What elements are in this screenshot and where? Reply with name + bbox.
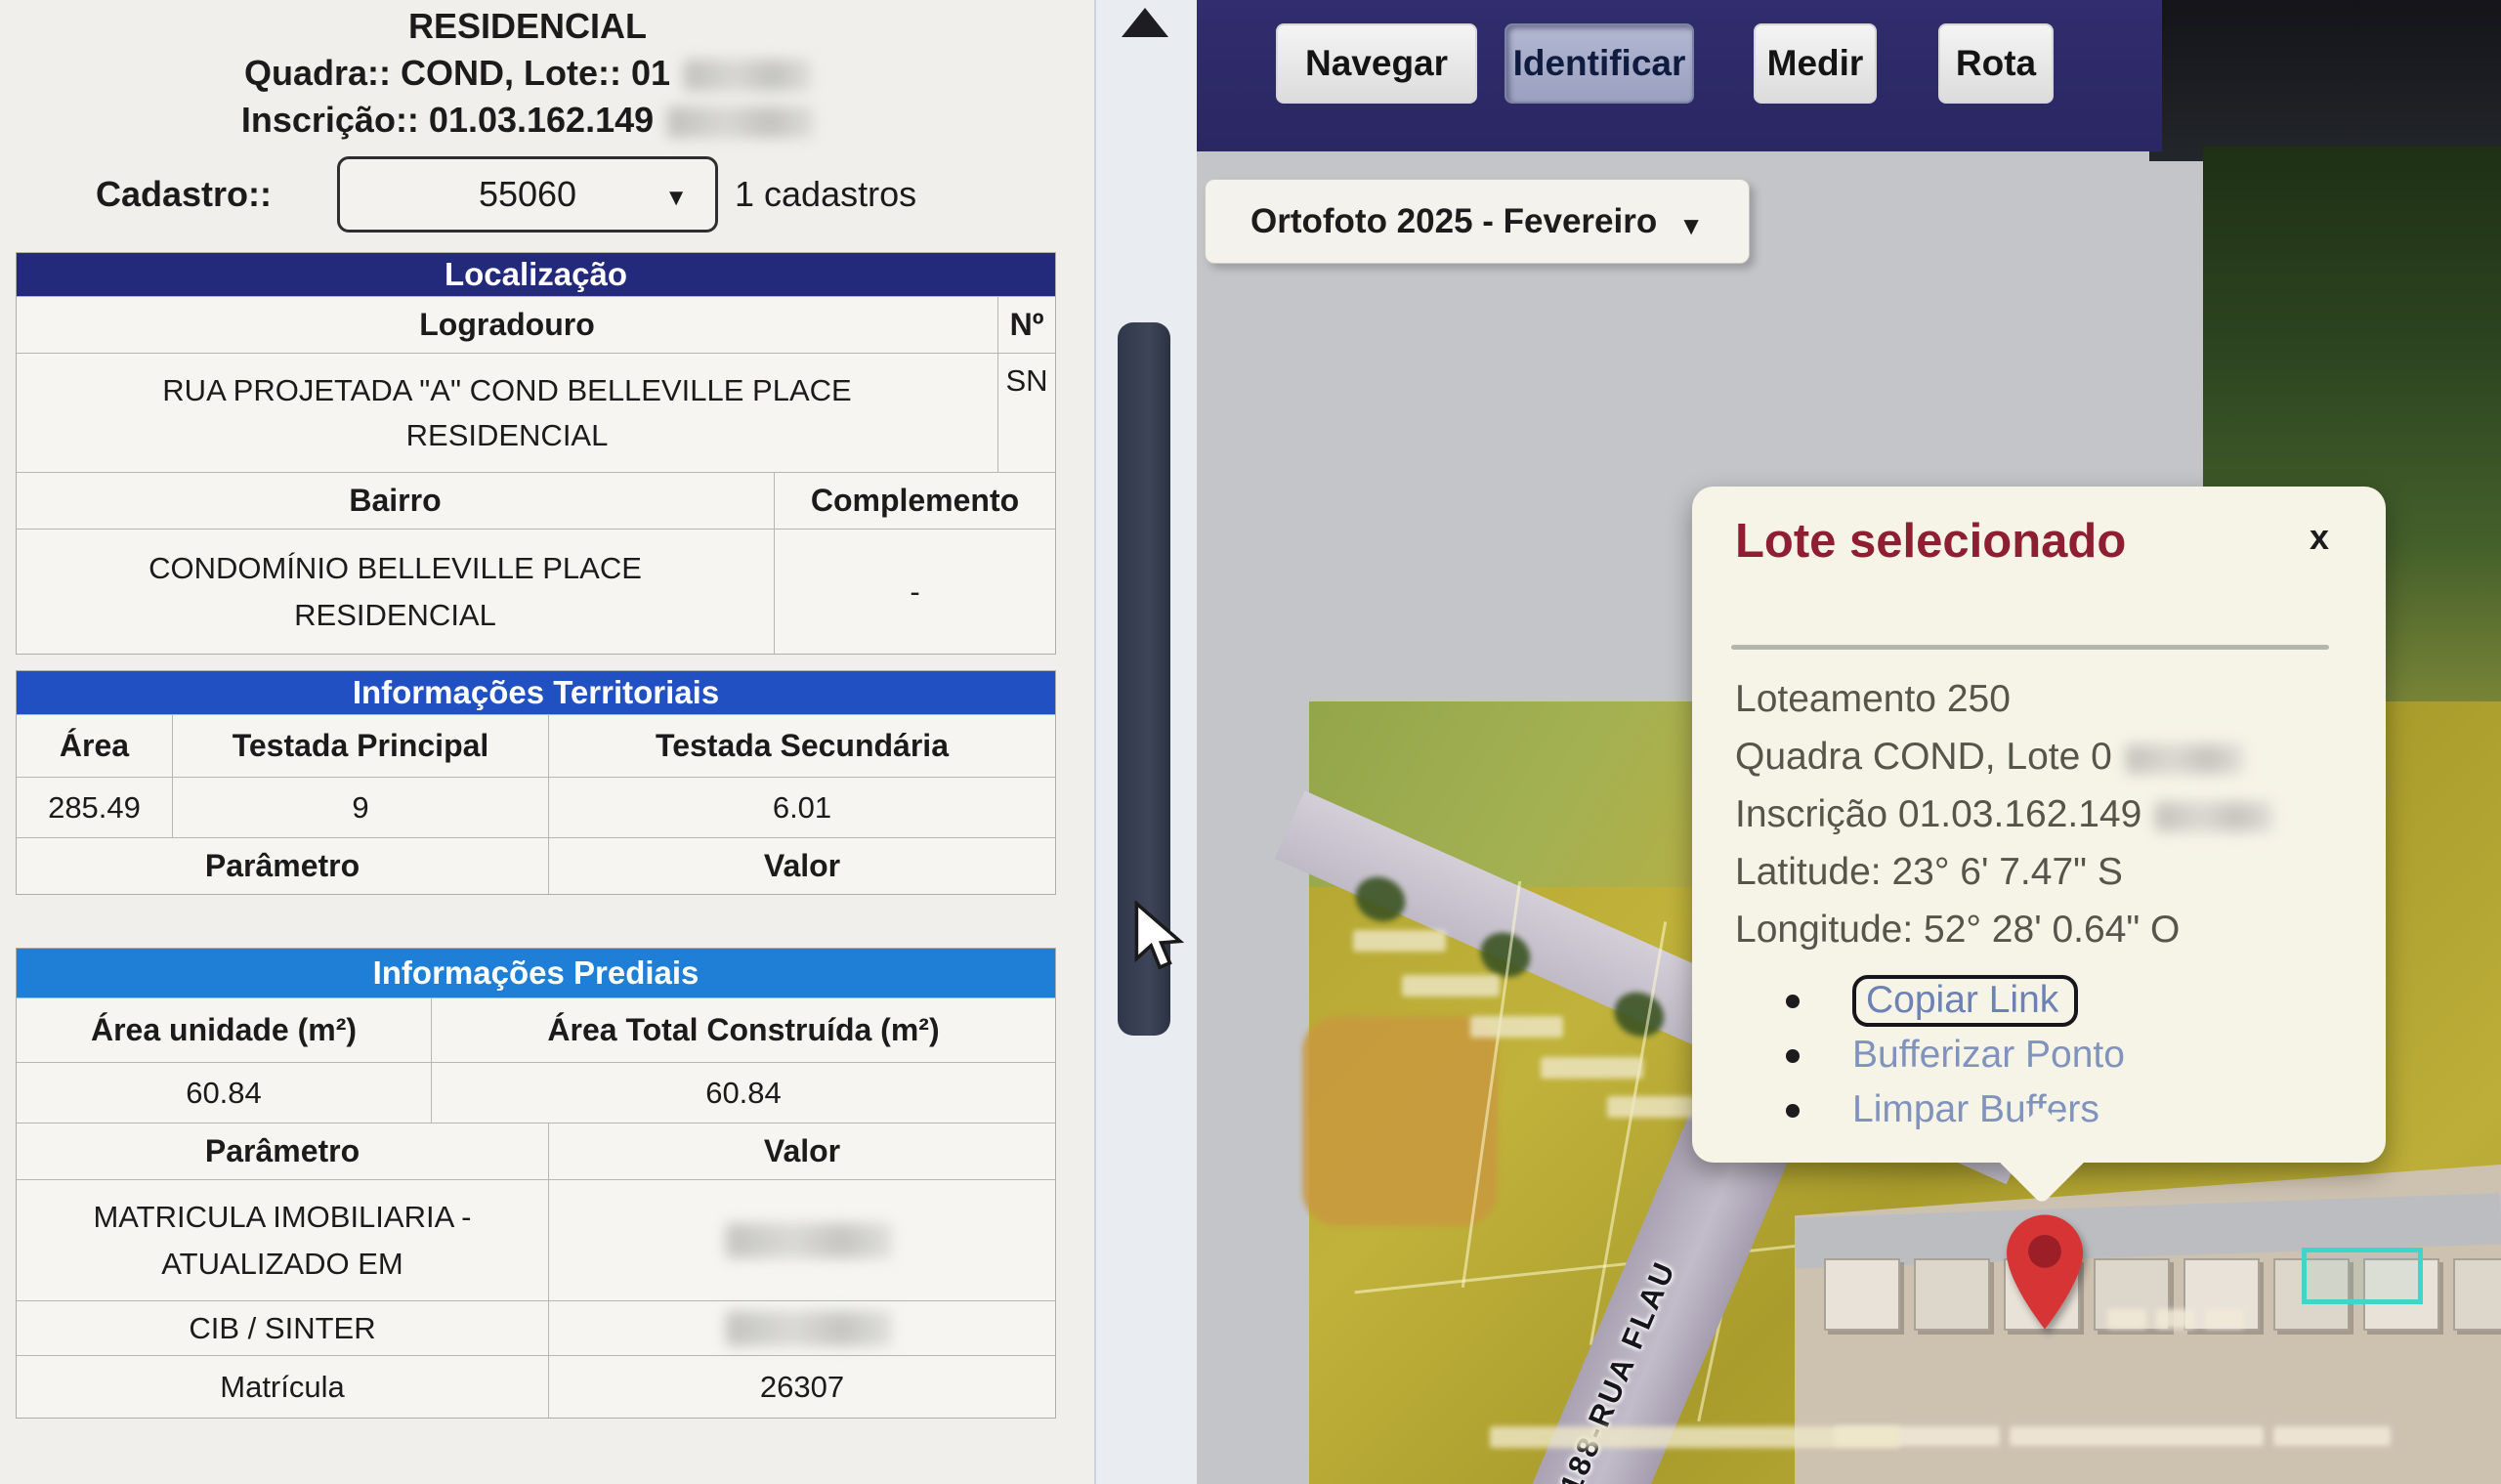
lote-selecionado-popup: Lote selecionado x Loteamento 250 Quadra… bbox=[1692, 487, 2386, 1163]
territoriais-header-bar: Informações Territoriais bbox=[17, 671, 1055, 714]
col-bairro: Bairro bbox=[17, 473, 774, 529]
map-urban-area bbox=[1795, 1165, 2501, 1484]
logradouro-value: RUA PROJETADA "A" COND BELLEVILLE PLACE … bbox=[17, 354, 997, 472]
table-row: Matrícula 26307 bbox=[17, 1355, 1055, 1418]
app-root: RESIDENCIAL Quadra:: COND, Lote:: 01 Ins… bbox=[0, 0, 2501, 1484]
cadastro-select[interactable]: 55060 ▼ bbox=[337, 156, 718, 233]
redacted-text bbox=[667, 106, 814, 138]
street-label-chip bbox=[1490, 1426, 1900, 1448]
prediais-table: Informações Prediais Área unidade (m²) Á… bbox=[16, 948, 1056, 1419]
quadra-lote-label: Quadra:: COND, Lote:: 01 bbox=[0, 53, 1055, 94]
divider bbox=[1731, 645, 2329, 650]
loteamento-line: Loteamento 250 bbox=[1735, 670, 2272, 728]
parcel-number-chip bbox=[1470, 1016, 1563, 1038]
table-header-row: Bairro Complemento bbox=[17, 472, 1055, 529]
list-item: Limpar Buffers bbox=[1786, 1082, 2125, 1137]
close-icon[interactable]: x bbox=[2310, 520, 2329, 555]
navegar-button[interactable]: Navegar bbox=[1276, 23, 1477, 104]
list-item: Copiar Link bbox=[1786, 973, 2125, 1028]
table-header-row: Logradouro Nº bbox=[17, 296, 1055, 353]
col-valor: Valor bbox=[548, 1124, 1055, 1179]
bairro-value: CONDOMÍNIO BELLEVILLE PLACE RESIDENCIAL bbox=[17, 530, 774, 654]
lot-number-labels bbox=[2107, 1309, 2244, 1329]
col-parametro: Parâmetro bbox=[17, 1124, 548, 1179]
parcel-number-chip bbox=[1541, 1057, 1643, 1079]
map-dark-area bbox=[2149, 0, 2501, 161]
table-row: CIB / SINTER bbox=[17, 1300, 1055, 1355]
table-row: 285.49 9 6.01 bbox=[17, 777, 1055, 837]
mouse-cursor-icon bbox=[1133, 901, 1198, 973]
localizacao-table: Localização Logradouro Nº RUA PROJETADA … bbox=[16, 252, 1056, 655]
map-viewport[interactable]: 188-RUA FLAU bbox=[1197, 0, 2501, 1484]
table-row: 60.84 60.84 bbox=[17, 1062, 1055, 1123]
testada-secundaria-value: 6.01 bbox=[548, 778, 1055, 837]
col-numero: Nº bbox=[997, 297, 1055, 353]
chevron-down-icon: ▼ bbox=[1678, 211, 1704, 241]
table-header-row: Área unidade (m²) Área Total Construída … bbox=[17, 997, 1055, 1062]
rota-button[interactable]: Rota bbox=[1938, 23, 2054, 104]
table-header-row: Parâmetro Valor bbox=[17, 837, 1055, 894]
col-testada-secundaria: Testada Secundária bbox=[548, 715, 1055, 777]
selected-lot-highlight bbox=[2302, 1248, 2423, 1304]
cadastro-count: 1 cadastros bbox=[735, 174, 916, 215]
col-area-unidade: Área unidade (m²) bbox=[17, 998, 431, 1062]
col-area-total: Área Total Construída (m²) bbox=[431, 998, 1055, 1062]
col-testada-principal: Testada Principal bbox=[172, 715, 548, 777]
inscricao-label: Inscrição:: 01.03.162.149 bbox=[0, 100, 1055, 141]
numero-value: SN bbox=[997, 354, 1055, 472]
lot-number-chip bbox=[2205, 1309, 2244, 1329]
redacted-text bbox=[2126, 744, 2243, 774]
street-labels-row bbox=[1834, 1426, 2391, 1446]
col-complemento: Complemento bbox=[774, 473, 1055, 529]
list-item: Bufferizar Ponto bbox=[1786, 1028, 2125, 1082]
identificar-button[interactable]: Identificar bbox=[1505, 23, 1694, 104]
popup-action-links: Copiar Link Bufferizar Ponto Limpar Buff… bbox=[1786, 973, 2125, 1137]
col-logradouro: Logradouro bbox=[17, 297, 997, 353]
parcel-number-chip bbox=[1607, 1096, 1695, 1118]
parametro-matricula-imobiliaria: MATRICULA IMOBILIARIA - ATUALIZADO EM bbox=[17, 1180, 548, 1300]
redacted-text bbox=[726, 1223, 892, 1258]
table-row: CONDOMÍNIO BELLEVILLE PLACE RESIDENCIAL … bbox=[17, 529, 1055, 654]
area-unidade-value: 60.84 bbox=[17, 1063, 431, 1123]
latitude-line: Latitude: 23° 6' 7.47" S bbox=[1735, 843, 2272, 901]
inscricao-line: Inscrição 01.03.162.149 bbox=[1735, 785, 2272, 843]
territoriais-table: Informações Territoriais Área Testada Pr… bbox=[16, 670, 1056, 895]
longitude-line: Longitude: 52° 28' 0.64" O bbox=[1735, 901, 2272, 958]
redacted-text bbox=[2155, 802, 2272, 831]
property-type-label: RESIDENCIAL bbox=[0, 6, 1055, 47]
label-chip bbox=[2273, 1426, 2391, 1446]
property-info-panel: RESIDENCIAL Quadra:: COND, Lote:: 01 Ins… bbox=[0, 0, 1094, 1484]
cadastro-row: Cadastro:: 55060 ▼ 1 cadastros bbox=[0, 156, 1055, 234]
complemento-value: - bbox=[774, 530, 1055, 654]
label-chip bbox=[2010, 1426, 2264, 1446]
medir-button[interactable]: Medir bbox=[1754, 23, 1877, 104]
lot-number-chip bbox=[2156, 1309, 2195, 1329]
parametro-matricula: Matrícula bbox=[17, 1356, 548, 1418]
matricula-value: 26307 bbox=[548, 1356, 1055, 1418]
panel-scrollbar[interactable] bbox=[1094, 0, 1197, 1484]
popup-info-lines: Loteamento 250 Quadra COND, Lote 0 Inscr… bbox=[1735, 670, 2272, 958]
layer-selector-value: Ortofoto 2025 - Fevereiro bbox=[1250, 202, 1657, 241]
redacted-text bbox=[684, 60, 811, 91]
scroll-up-arrow[interactable] bbox=[1122, 8, 1168, 37]
map-parcel-orange bbox=[1302, 1016, 1498, 1226]
lot-number-chip bbox=[2107, 1309, 2146, 1329]
prediais-header-bar: Informações Prediais bbox=[17, 949, 1055, 997]
valor-redacted bbox=[548, 1180, 1055, 1300]
map-pin-icon bbox=[2007, 1209, 2083, 1335]
popup-title: Lote selecionado bbox=[1735, 514, 2126, 569]
cadastro-label: Cadastro:: bbox=[96, 174, 272, 215]
chevron-down-icon: ▼ bbox=[664, 185, 688, 212]
property-header: RESIDENCIAL Quadra:: COND, Lote:: 01 Ins… bbox=[0, 6, 1055, 141]
house-roof bbox=[1914, 1258, 1990, 1331]
parcel-number-chip bbox=[1353, 930, 1446, 952]
house-roof bbox=[1824, 1258, 1900, 1331]
testada-principal-value: 9 bbox=[172, 778, 548, 837]
map-toolbar: Navegar Identificar Medir Rota bbox=[1197, 0, 2162, 151]
parametro-cib-sinter: CIB / SINTER bbox=[17, 1301, 548, 1355]
valor-redacted bbox=[548, 1301, 1055, 1355]
copiar-link-action[interactable]: Copiar Link bbox=[1852, 975, 2078, 1027]
col-valor: Valor bbox=[548, 838, 1055, 894]
cadastro-value: 55060 bbox=[479, 174, 576, 215]
layer-selector-dropdown[interactable]: Ortofoto 2025 - Fevereiro ▼ bbox=[1205, 179, 1750, 264]
area-total-value: 60.84 bbox=[431, 1063, 1055, 1123]
col-parametro: Parâmetro bbox=[17, 838, 548, 894]
table-header-row: Parâmetro Valor bbox=[17, 1123, 1055, 1179]
bufferizar-ponto-action[interactable]: Bufferizar Ponto bbox=[1852, 1034, 2125, 1076]
table-header-row: Área Testada Principal Testada Secundári… bbox=[17, 714, 1055, 777]
table-row: MATRICULA IMOBILIARIA - ATUALIZADO EM bbox=[17, 1179, 1055, 1300]
redacted-text bbox=[726, 1311, 892, 1346]
col-area: Área bbox=[17, 715, 172, 777]
limpar-buffers-action[interactable]: Limpar Buffers bbox=[1852, 1088, 2099, 1130]
house-roof bbox=[2453, 1258, 2501, 1331]
area-value: 285.49 bbox=[17, 778, 172, 837]
quadra-lote-line: Quadra COND, Lote 0 bbox=[1735, 728, 2272, 785]
parcel-number-chip bbox=[1402, 975, 1500, 996]
table-row: RUA PROJETADA "A" COND BELLEVILLE PLACE … bbox=[17, 353, 1055, 472]
localizacao-header-bar: Localização bbox=[17, 253, 1055, 296]
